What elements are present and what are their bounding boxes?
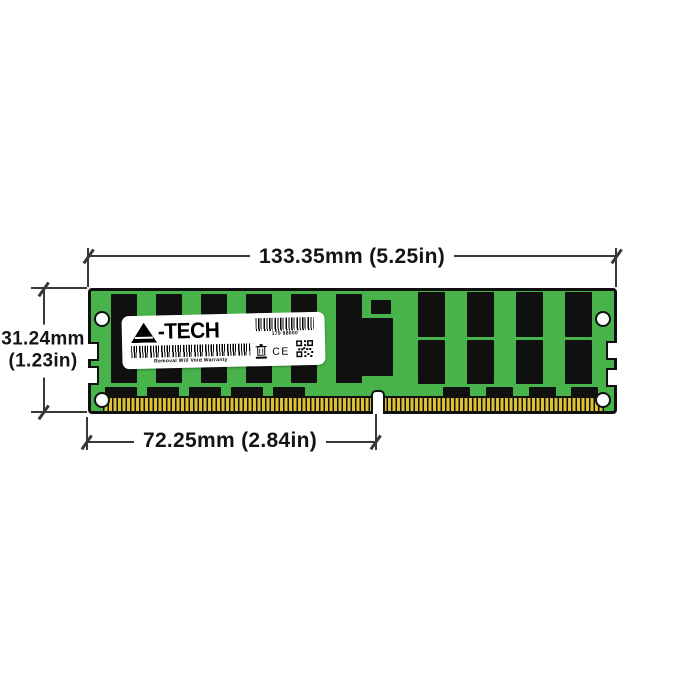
memory-chip [565,292,592,337]
product-label: -TECH 179 88000 Removal Will Void Warran… [121,312,325,370]
a-tech-logo-a-icon [131,323,157,344]
barcode-icon [131,343,250,358]
weee-crossed-bin-icon [255,343,267,359]
product-dimension-diagram: 133.35mm (5.25in) 31.24mm (1.23in) 72.25… [0,0,700,700]
qr-code-icon [296,340,313,357]
mounting-hole [94,311,110,327]
warranty-text: Removal Will Void Warranty [131,357,250,365]
mounting-hole [595,311,611,327]
retention-notch [88,366,99,385]
memory-chip [467,292,494,337]
memory-chip [516,292,543,337]
retention-notch [606,368,617,387]
ce-mark: CE [272,345,290,357]
extension-line [31,411,87,413]
serial-number: 179 88000 [256,331,314,337]
brand-logo: -TECH [131,319,220,343]
mounting-hole [595,392,611,408]
width-dimension-label: 133.35mm (5.25in) [250,244,454,270]
retention-notch [606,341,617,360]
notch-offset-dimension-label: 72.25mm (2.84in) [134,428,326,454]
memory-chip [418,340,445,384]
register-buffer-chip [362,318,393,376]
retention-notch [88,342,99,361]
memory-module-pcb: -TECH 179 88000 Removal Will Void Warran… [88,288,617,414]
memory-chip [516,340,543,384]
pmic-chip [371,300,391,314]
brand-logo-text: -TECH [158,321,220,343]
memory-chip [418,292,445,337]
edge-connector-pins [103,396,604,411]
mounting-hole [94,392,110,408]
memory-chip [336,294,362,383]
memory-chip [467,340,494,384]
memory-chip [565,340,592,384]
height-in-text: (1.23in) [1,351,84,373]
barcode-icon [256,317,314,331]
extension-line [31,287,87,289]
height-dimension-label: 31.24mm (1.23in) [0,325,88,378]
height-mm-text: 31.24mm [1,329,84,351]
connector-key-notch [371,390,385,414]
